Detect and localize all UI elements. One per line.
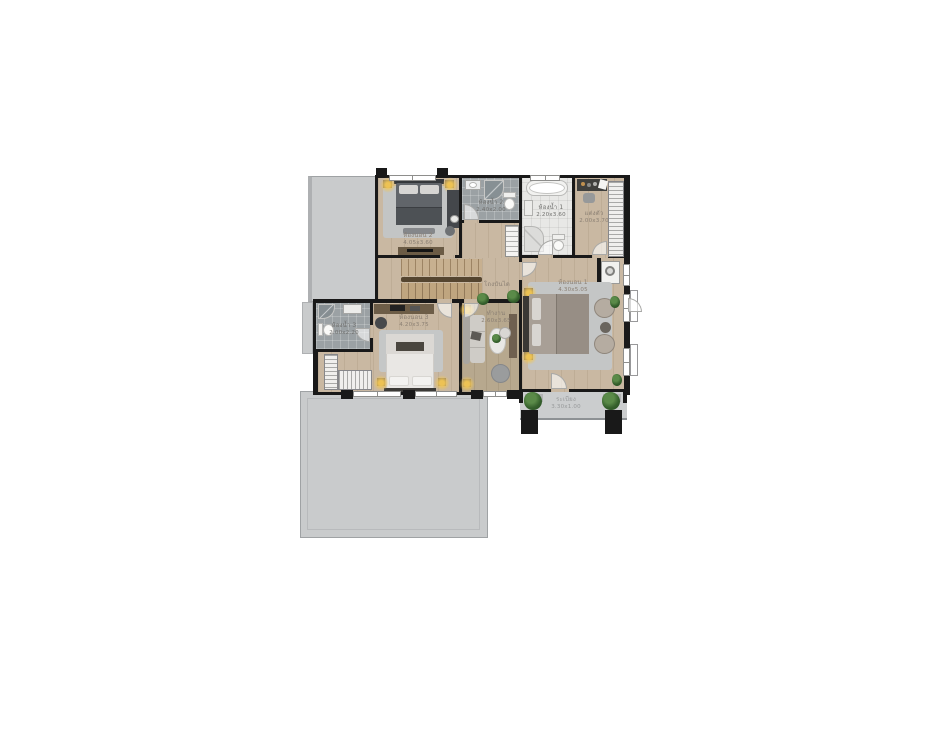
wall-nub: [376, 168, 387, 177]
bed-blanket: [396, 207, 442, 225]
toilet-bowl: [553, 240, 564, 251]
room-label-bathroom2: ห้องน้ำ 2 2.40x2.00: [476, 199, 506, 215]
door-opening: [538, 255, 553, 258]
wall-nub: [403, 390, 415, 399]
window: [389, 175, 436, 181]
roof-terrace-upper: [308, 176, 378, 302]
door-opening: [440, 255, 455, 258]
room-name: ทำงาน: [487, 310, 506, 317]
room-name: แต่งตัว: [585, 210, 604, 217]
window: [530, 175, 560, 181]
room-name: ห้องน้ำ 3: [332, 322, 357, 329]
room-dims: 4.05x3.60: [403, 240, 433, 247]
window: [483, 391, 507, 397]
plant-icon: [524, 392, 542, 410]
laptop: [410, 306, 420, 311]
room-dims: 3.30x1.00: [551, 404, 581, 411]
window: [353, 391, 401, 397]
wall-nub: [341, 390, 353, 399]
plant-icon: [507, 290, 520, 303]
roof-ledge-strip: [302, 302, 313, 354]
wall-nub: [471, 390, 483, 399]
ac-unit-icon: [521, 410, 538, 434]
armchair: [594, 334, 615, 354]
room-label-bedroom1: ห้องนอน 1 4.30x5.05: [558, 279, 588, 295]
bed-blanket: [556, 294, 589, 354]
pillow: [412, 376, 432, 386]
tv: [407, 249, 433, 252]
room-dims: 2.40x2.00: [476, 207, 506, 214]
plant-icon: [612, 374, 622, 386]
bathtub-basin: [529, 182, 565, 194]
bed-throw: [396, 342, 424, 351]
vanity-sink: [524, 200, 533, 216]
wardrobe: [608, 181, 624, 257]
stairs-lower-flight: [401, 283, 482, 299]
window: [415, 391, 457, 397]
vanity-sink: [343, 304, 362, 314]
window: [623, 264, 630, 286]
wall-nub: [437, 168, 448, 177]
room-dims: 2.60x3.65: [481, 318, 511, 325]
wall-stub: [623, 392, 627, 403]
room-label-bathroom1: ห้องน้ำ 1 2.20x3.60: [536, 204, 566, 220]
stairs-upper-flight: [401, 259, 482, 276]
room-name: ห้องนอน 3: [399, 314, 429, 321]
room-label-bedroom2: ห้องนอน 2 4.05x3.60: [403, 232, 433, 248]
chair: [375, 317, 387, 329]
monitor: [390, 305, 405, 311]
plant-icon: [602, 392, 620, 410]
room-name: ระเบียง: [556, 396, 576, 403]
room-label-bedroom3: ห้องนอน 3 4.20x3.75: [399, 314, 429, 330]
roof-terrace-inner-line: [307, 398, 480, 530]
room-dims: 4.30x5.05: [558, 287, 588, 294]
room-name: ห้องนอน 2: [403, 232, 433, 239]
room-dims: 4.20x3.75: [399, 322, 429, 329]
linen-cabinet: [505, 225, 519, 257]
room-dims: 2.00x2.20: [329, 330, 359, 337]
plant-icon: [610, 296, 620, 308]
room-name: ห้องน้ำ 1: [539, 204, 564, 211]
chair: [445, 226, 455, 236]
vanity-mirror: [450, 215, 459, 223]
counter-item: [587, 183, 591, 187]
chair: [499, 327, 511, 339]
counter-item: [581, 182, 585, 186]
pillow: [420, 185, 439, 194]
wall-nub: [507, 390, 519, 399]
stool: [583, 193, 595, 203]
ac-unit-icon: [605, 410, 622, 434]
room-label-dressing: แต่งตัว 2.00x3.70: [579, 210, 609, 226]
sink-basin: [469, 182, 477, 188]
room-label-office: ทำงาน 2.60x3.65: [481, 310, 511, 326]
pillow: [399, 185, 418, 194]
pillow: [389, 376, 409, 386]
pillow: [532, 324, 541, 346]
closet: [324, 354, 338, 390]
room-name: โถงบันได: [484, 281, 510, 288]
room-dims: 2.20x3.60: [536, 212, 566, 219]
wall-stub: [519, 392, 523, 403]
floor-plan-canvas: ห้องนอน 2 4.05x3.60 ห้องน้ำ 2 2.40x2.00 …: [0, 0, 935, 745]
pouf: [491, 364, 510, 383]
lamp-glow-icon: [373, 375, 389, 391]
closet: [338, 370, 372, 390]
washing-machine-door: [605, 266, 615, 276]
stairs-rail: [401, 277, 482, 282]
counter-item: [593, 182, 597, 186]
pillow: [532, 298, 541, 320]
window: [623, 348, 630, 376]
window-sill: [630, 344, 638, 376]
room-name: ห้องน้ำ 2: [479, 199, 504, 206]
room-label-balcony: ระเบียง 3.30x1.00: [551, 396, 581, 412]
room-name: ห้องนอน 1: [558, 279, 588, 286]
room-label-bathroom3: ห้องน้ำ 3 2.00x2.20: [329, 322, 359, 338]
side-table: [600, 322, 611, 333]
room-dims: 2.00x3.70: [579, 218, 609, 225]
door-opening: [464, 220, 479, 223]
room-label-stair-hall: โถงบันได: [484, 281, 510, 289]
door-swing-arc: [628, 298, 642, 312]
sofa-back: [463, 314, 470, 364]
lamp-glow-icon: [434, 375, 450, 391]
door-opening: [370, 325, 373, 338]
